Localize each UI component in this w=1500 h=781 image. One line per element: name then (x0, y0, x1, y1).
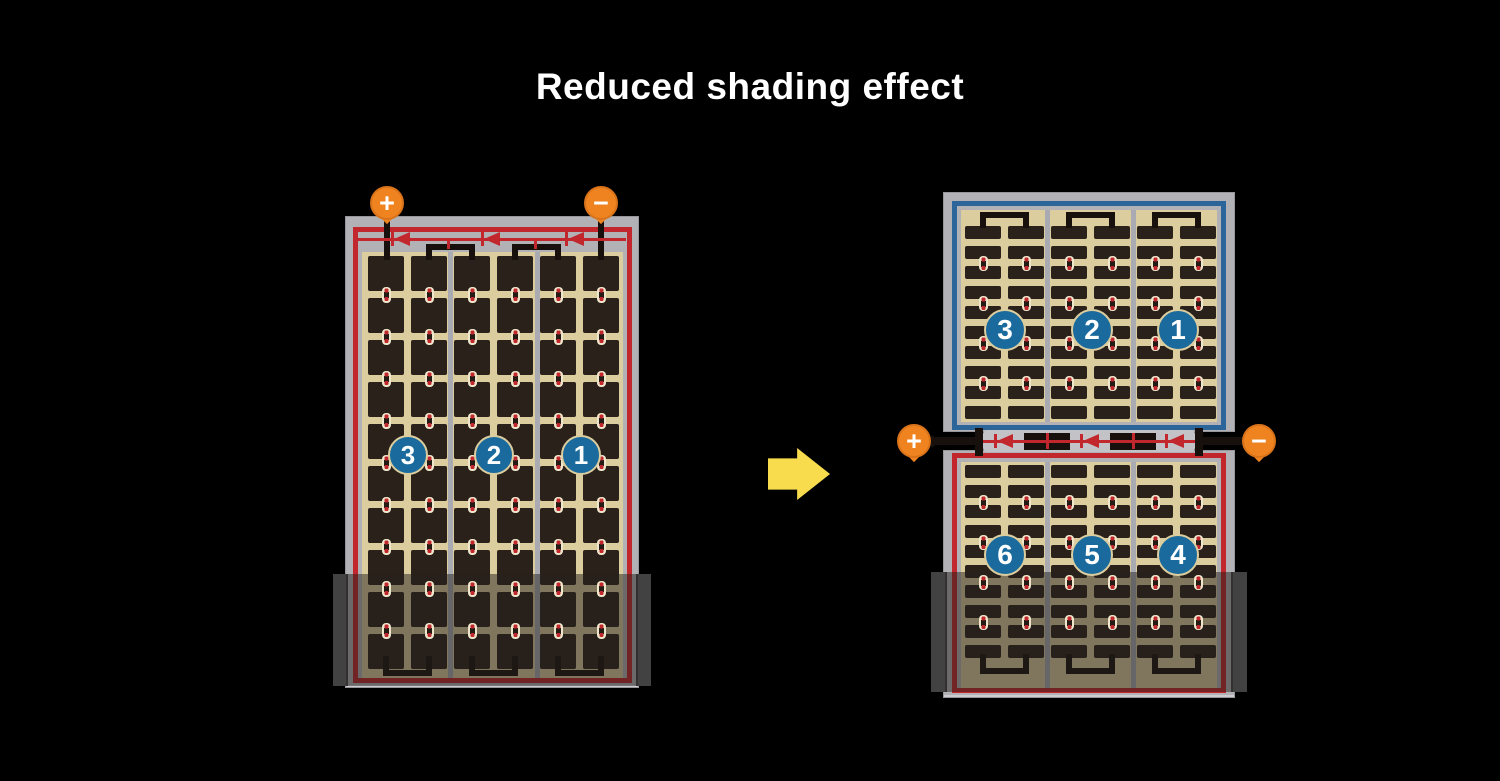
cell-joint (468, 539, 477, 555)
cell-joint (597, 287, 606, 303)
cell-joint (554, 371, 563, 387)
section-number-badge: 6 (984, 534, 1026, 576)
cell-joint (468, 287, 477, 303)
cell-joint (597, 623, 606, 639)
diode-line-tap (1046, 433, 1049, 449)
right-panel: 321654+− (0, 0, 1500, 781)
section-number-badge: 2 (1071, 309, 1113, 351)
wire (975, 428, 983, 456)
cell-joint (979, 495, 988, 510)
plus-terminal-icon: + (370, 186, 404, 220)
cell-joint (554, 539, 563, 555)
cell-joint (425, 497, 434, 513)
cell-joint (597, 329, 606, 345)
cell-joint (1022, 296, 1031, 311)
diode-icon (568, 232, 584, 246)
cell-joint (597, 371, 606, 387)
cell-joint (382, 497, 391, 513)
cell-joint (1065, 376, 1074, 391)
cell-joint (1151, 296, 1160, 311)
cell-joint (468, 329, 477, 345)
cell-joint (597, 581, 606, 597)
cell-joint (382, 539, 391, 555)
cell-joint (1065, 615, 1074, 630)
cell-joint (1022, 615, 1031, 630)
cell-joint (511, 623, 520, 639)
cell-joint (382, 581, 391, 597)
diode-icon (1083, 434, 1099, 448)
cell-joint (1194, 615, 1203, 630)
cell-joint (1194, 256, 1203, 271)
cell-joint (511, 329, 520, 345)
cell-joint (1194, 296, 1203, 311)
cell-joint (382, 329, 391, 345)
cell-joint (511, 287, 520, 303)
cell-joint (554, 581, 563, 597)
wire (931, 437, 979, 445)
cell-joint (1108, 376, 1117, 391)
cell-joint (511, 539, 520, 555)
section-number-badge: 4 (1157, 534, 1199, 576)
cell-joint (468, 581, 477, 597)
section-number-badge: 3 (984, 309, 1026, 351)
cell-joint (554, 497, 563, 513)
cell-joint (511, 497, 520, 513)
cell-joint (554, 623, 563, 639)
cell-joint (979, 376, 988, 391)
diode-icon (394, 232, 410, 246)
cell-joint (1065, 296, 1074, 311)
cell-joint (1151, 615, 1160, 630)
section-number-badge: 2 (474, 435, 514, 475)
diagram-canvas: Reduced shading effect 321+−321654+− (0, 0, 1500, 781)
cell-joint (511, 371, 520, 387)
section-number-badge: 3 (388, 435, 428, 475)
cell-joint (554, 287, 563, 303)
diode-icon (484, 232, 500, 246)
cell-joint (425, 539, 434, 555)
cell-joint (468, 497, 477, 513)
cell-joint (1108, 495, 1117, 510)
minus-terminal-icon: − (1242, 424, 1276, 458)
cell-joint (597, 413, 606, 429)
cell-joint (1108, 256, 1117, 271)
cell-joint (1108, 575, 1117, 590)
cell-joint (382, 287, 391, 303)
cell-joint (554, 413, 563, 429)
diode-line-tap (1132, 433, 1135, 449)
wire (1195, 428, 1203, 456)
cell-joint (1108, 615, 1117, 630)
section-number-badge: 1 (561, 435, 601, 475)
cell-joint (1022, 256, 1031, 271)
cell-joint (425, 581, 434, 597)
cell-joint (1022, 575, 1031, 590)
cell-joint (511, 581, 520, 597)
section-number-badge: 1 (1157, 309, 1199, 351)
diode-icon (997, 434, 1013, 448)
cell-joint (425, 371, 434, 387)
cell-joint (1022, 495, 1031, 510)
cell-joint (1194, 376, 1203, 391)
cell-joint (425, 413, 434, 429)
cell-joint (597, 539, 606, 555)
cell-joint (511, 413, 520, 429)
cell-joint (468, 623, 477, 639)
diode-icon (1168, 434, 1184, 448)
cell-joint (1194, 575, 1203, 590)
cell-joint (468, 371, 477, 387)
cell-joint (1151, 495, 1160, 510)
cell-joint (382, 623, 391, 639)
cell-joint (1194, 495, 1203, 510)
cell-joint (554, 329, 563, 345)
section-number-badge: 5 (1071, 534, 1113, 576)
cell-joint (425, 287, 434, 303)
cell-joint (1065, 575, 1074, 590)
cell-joint (1065, 256, 1074, 271)
cell-joint (468, 413, 477, 429)
minus-terminal-icon: − (584, 186, 618, 220)
cell-joint (425, 329, 434, 345)
cell-joint (979, 615, 988, 630)
cell-joint (1022, 376, 1031, 391)
cell-joint (979, 296, 988, 311)
cell-joint (979, 575, 988, 590)
cell-joint (382, 413, 391, 429)
cell-joint (1065, 495, 1074, 510)
cell-joint (425, 623, 434, 639)
shading-overlay (945, 572, 1233, 692)
cell-joint (1151, 376, 1160, 391)
diagram-body: 321+−321654+− (0, 0, 1500, 781)
cell-joint (1108, 296, 1117, 311)
cell-joint (382, 371, 391, 387)
shading-overlay-right-edge (1231, 572, 1247, 692)
cell-joint (1151, 256, 1160, 271)
cell-joint (597, 497, 606, 513)
cell-joint (1151, 575, 1160, 590)
plus-terminal-icon: + (897, 424, 931, 458)
cell-joint (979, 256, 988, 271)
